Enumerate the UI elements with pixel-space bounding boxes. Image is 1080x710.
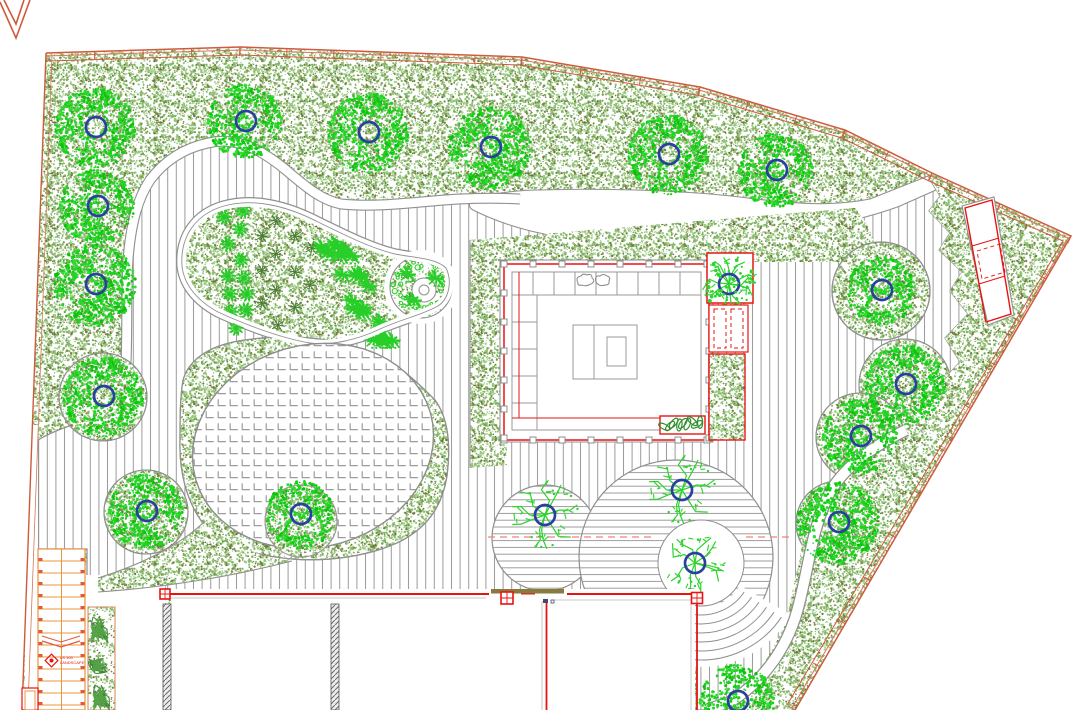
svg-text:LANDSCAPE: LANDSCAPE	[60, 660, 85, 665]
